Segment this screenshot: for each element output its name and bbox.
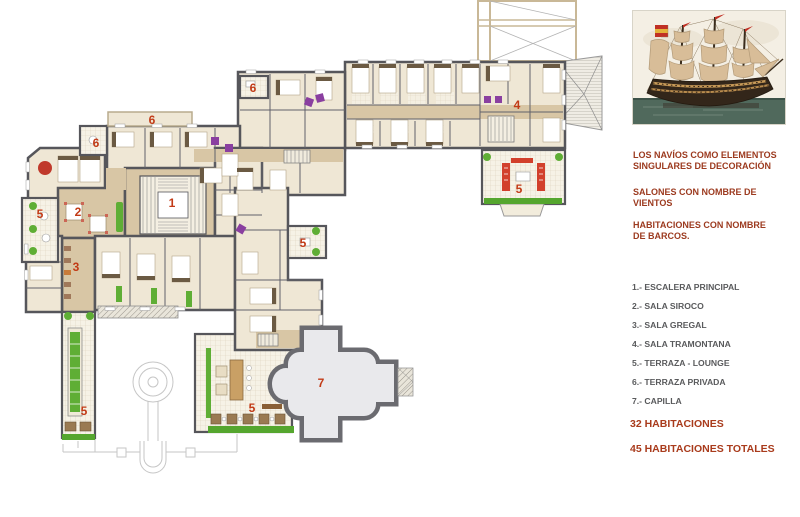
note-navios: LOS NAVÍOS COMO ELEMENTOS SINGULARES DE … xyxy=(633,150,798,172)
chapel-steps xyxy=(398,368,413,396)
main-staircase xyxy=(140,176,206,234)
spanish-flag xyxy=(655,25,668,37)
ship-illustration xyxy=(633,11,785,124)
ship-painting xyxy=(632,10,786,125)
legend-item: 1.- ESCALERA PRINCIPAL xyxy=(632,281,800,300)
note-habitaciones: HABITACIONES CON NOMBRE DE BARCOS. xyxy=(633,220,798,242)
legend-list: 1.- ESCALERA PRINCIPAL2.- SALA SIROCO3.-… xyxy=(632,281,800,414)
legend-item: 6.- TERRAZA PRIVADA xyxy=(632,376,800,395)
side-panel: LOS NAVÍOS COMO ELEMENTOS SINGULARES DE … xyxy=(630,0,800,517)
legend-item: 7.- CAPILLA xyxy=(632,395,800,414)
note-salones: SALONES CON NOMBRE DE VIENTOS xyxy=(633,187,798,209)
roof-frame xyxy=(478,1,576,61)
terrace-bay xyxy=(500,204,544,216)
total-line: 45 HABITACIONES TOTALES xyxy=(630,442,800,467)
floor-plan xyxy=(0,0,620,517)
legend-item: 5.- TERRAZA - LOUNGE xyxy=(632,357,800,376)
legend-item: 3.- SALA GREGAL xyxy=(632,319,800,338)
legend-item: 4.- SALA TRAMONTANA xyxy=(632,338,800,357)
totals: 32 HABITACIONES45 HABITACIONES TOTALES xyxy=(630,417,800,467)
slide: 6466512553755 xyxy=(0,0,800,517)
legend-item: 2.- SALA SIROCO xyxy=(632,300,800,319)
total-line: 32 HABITACIONES xyxy=(630,417,800,442)
red-chair xyxy=(38,161,52,175)
